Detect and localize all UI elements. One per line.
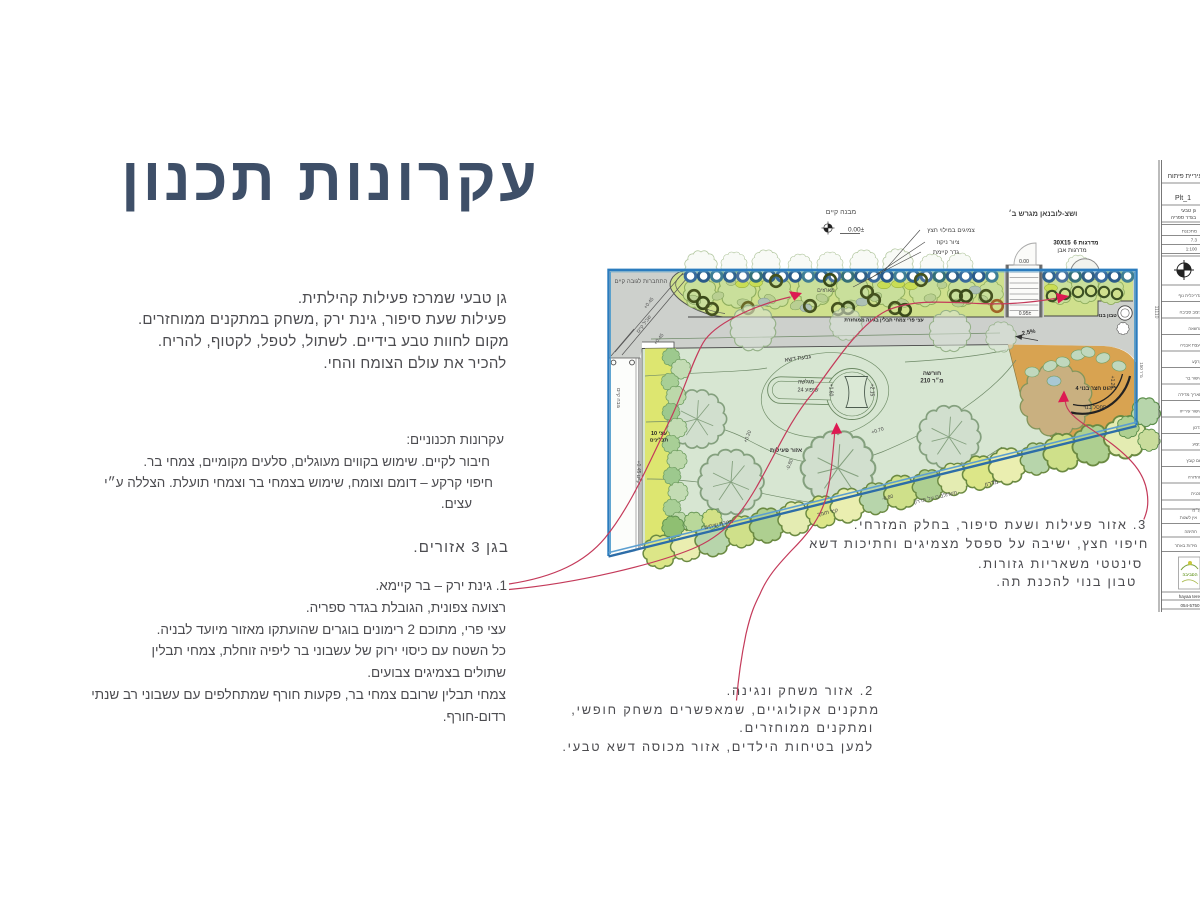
- svg-text:מאחזים: מאחזים: [817, 288, 835, 294]
- svg-text:שם קובץ: שם קובץ: [1186, 458, 1200, 463]
- svg-text:210 מ״ר: 210 מ״ר: [920, 378, 943, 385]
- svg-text:10 עצי: 10 עצי: [651, 431, 668, 437]
- svg-text:טבון בנוי: טבון בנוי: [1097, 313, 1117, 319]
- svg-text:חורשה: חורשה: [923, 371, 941, 377]
- svg-text:מידות באתר: מידות באתר: [1175, 543, 1197, 548]
- svg-text:0.95±: 0.95±: [1019, 311, 1032, 317]
- svg-text:תאריך מדידה: תאריך מדידה: [1178, 392, 1200, 397]
- svg-text:בגדר ספריה: בגדר ספריה: [1171, 215, 1196, 221]
- svg-text:ספסל בנוי: ספסל בנוי: [1083, 404, 1107, 411]
- svg-text:אישור בר: אישור בר: [1186, 376, 1200, 381]
- svg-text:תכנית: תכנית: [1191, 491, 1200, 496]
- svg-text:0.00±: 0.00±: [848, 227, 865, 234]
- svg-text:אישור עירייה: אישור עירייה: [1180, 409, 1200, 414]
- svg-text:מגלשה: מגלשה: [798, 379, 815, 386]
- svg-text:חתימה: חתימה: [1184, 529, 1197, 534]
- svg-text:הסביבה: הסביבה: [1182, 572, 1197, 577]
- svg-text:מדרגות 6: מדרגות 6: [1073, 241, 1098, 247]
- svg-text:+1.20: +1.20: [1109, 376, 1115, 389]
- svg-text:054-5750: 054-5750: [1180, 603, 1200, 608]
- svg-text:אין לשנות: אין לשנות: [1180, 515, 1198, 520]
- svg-text:יועצת אבניה: יועצת אבניה: [1180, 343, 1200, 348]
- svg-text:Plt_1: Plt_1: [1175, 195, 1191, 202]
- svg-text:גן טבעי: גן טבעי: [1181, 208, 1196, 214]
- svg-text:עיריית פיתוח: עיריית פיתוח: [1168, 173, 1200, 180]
- svg-text:ציור ניקוז: ציור ניקוז: [937, 239, 961, 246]
- svg-text:צמיגים במילוי חצץ: צמיגים במילוי חצץ: [927, 226, 975, 234]
- svg-text:150 גדר: 150 גדר: [1139, 362, 1144, 378]
- svg-text:מהדורה: מהדורה: [1188, 475, 1200, 480]
- svg-text:11110: 11110: [1153, 306, 1159, 319]
- svg-text:0.00: 0.00: [1019, 259, 1029, 265]
- svg-text:עדכון: עדכון: [1193, 425, 1200, 430]
- svg-text:+1.60: +1.60: [828, 384, 834, 397]
- svg-text:7.3: 7.3: [1191, 238, 1198, 243]
- svg-text:מתכננת: מתכננת: [1182, 229, 1197, 234]
- svg-text:ושצ-לובנאן מגרש ב׳: ושצ-לובנאן מגרש ב׳: [1009, 209, 1078, 218]
- svg-text:מדרגות אבן: מדרגות אבן: [1057, 248, 1086, 254]
- svg-text:אדריכלית נוף: אדריכלית נוף: [1178, 293, 1200, 298]
- svg-text:+2.15: +2.15: [869, 384, 875, 397]
- svg-text:קרקע: קרקע: [1192, 359, 1200, 364]
- svg-text:1:100: 1:100: [1186, 247, 1198, 252]
- svg-text:גדר קיימת: גדר קיימת: [933, 249, 960, 256]
- svg-text:30X15: 30X15: [1053, 241, 1071, 247]
- svg-text:עצי פרי צמחי תבלין בגינה ממוחז: עצי פרי צמחי תבלין בגינה ממוחזרת: [844, 317, 924, 324]
- svg-text:ביצוע: ביצוע: [1192, 442, 1200, 447]
- svg-text:hayaa teref: hayaa teref: [1179, 594, 1200, 599]
- svg-text:מבנה קיים: מבנה קיים: [826, 209, 857, 216]
- svg-text:קנ״מ: קנ״מ: [1192, 508, 1200, 513]
- svg-text:התחברות לגובה קיים: התחברות לגובה קיים: [615, 277, 668, 285]
- svg-text:+0.45 קיים: +0.45 קיים: [635, 461, 641, 484]
- svg-text:גובה קיים: גובה קיים: [615, 388, 621, 408]
- svg-text:עיצוב סביבה: עיצוב סביבה: [1179, 310, 1200, 315]
- svg-text:הרשאה: הרשאה: [1188, 326, 1200, 331]
